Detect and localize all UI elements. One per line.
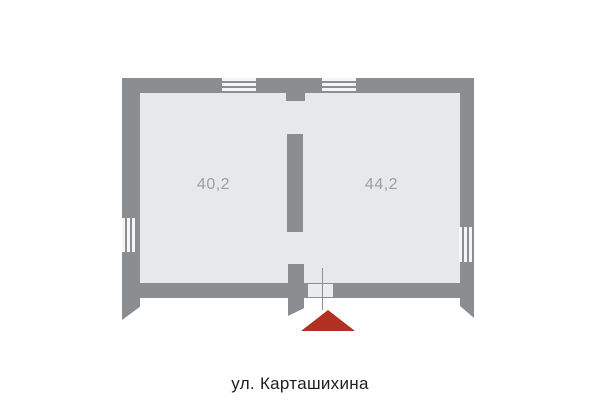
room-area-label-right: 44,2 [303, 176, 460, 194]
entrance-marker-icon [301, 310, 355, 331]
window-right-icon [459, 227, 474, 262]
partition-wall [287, 134, 303, 232]
floor-plan: 40,2 44,2 ул. Карташихина [0, 0, 600, 416]
partition-stub-bottom [288, 264, 304, 316]
wall-spur-left [122, 298, 140, 320]
wall-spur-right [460, 298, 474, 318]
entrance-door-line [322, 268, 323, 310]
street-label: ул. Карташихина [0, 374, 600, 394]
window-left-icon [122, 218, 137, 252]
entrance-door [308, 284, 333, 297]
room-area-label-left: 40,2 [140, 176, 287, 194]
window-top-left-icon [222, 78, 256, 91]
partition-stub-top [286, 93, 305, 101]
window-top-right-icon [322, 78, 356, 91]
